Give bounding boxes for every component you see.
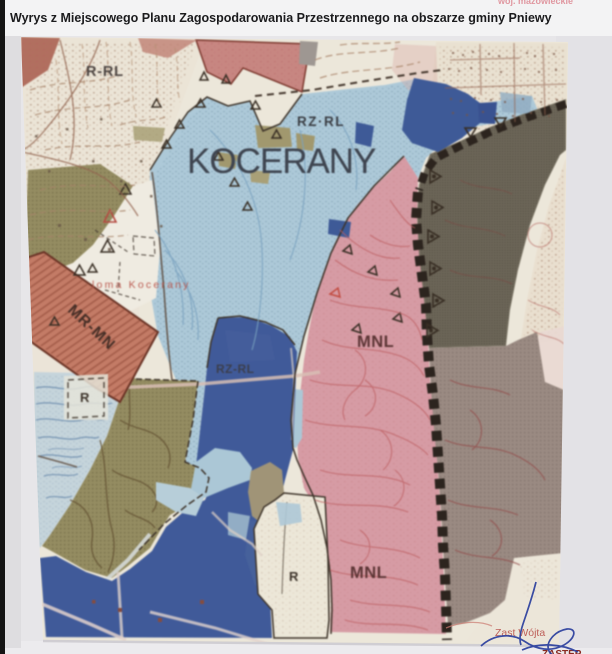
svg-text:Wyrys z Miejscowego Planu Zago: Wyrys z Miejscowego Planu Zagospodarowan…	[10, 11, 552, 25]
svg-text:woj. mazowieckie: woj. mazowieckie	[497, 0, 573, 6]
